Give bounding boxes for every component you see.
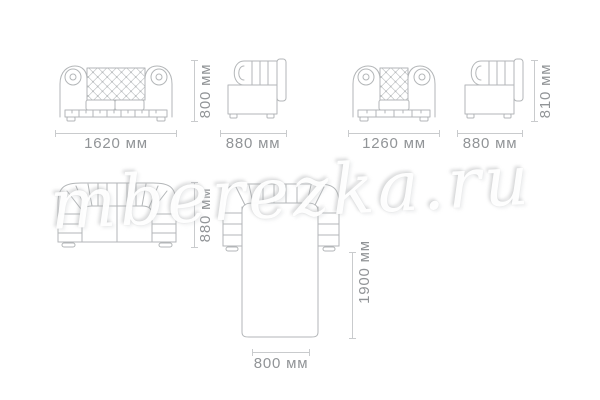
dimension-line-bed-length — [352, 252, 353, 339]
dimension-line-chair-height — [534, 60, 535, 122]
dimension-line-top-view-depth — [194, 182, 195, 248]
dimension-label-sofa-depth: 880 мм — [226, 136, 281, 152]
armchair-front-view-drawing — [348, 58, 440, 122]
dimension-label-sofa-height: 800 мм — [198, 64, 214, 119]
dimension-line-sofa-height — [194, 60, 195, 122]
sofa-front-view-drawing — [55, 58, 177, 122]
dimension-label-bed-width: 800 мм — [254, 356, 309, 372]
sofa-unfolded-top-view-drawing — [222, 182, 340, 340]
dimension-line-chair-width — [348, 133, 440, 134]
armchair-side-view-drawing — [457, 58, 525, 122]
dimension-line-bed-width — [252, 352, 310, 353]
sofa-side-view-drawing — [220, 58, 288, 122]
dimension-label-bed-length: 1900 мм — [357, 240, 373, 304]
dimension-line-sofa-depth — [220, 133, 287, 134]
dimension-label-chair-height: 810 мм — [538, 64, 554, 119]
dimension-label-chair-depth: 880 мм — [463, 136, 518, 152]
furniture-dimensions-diagram: 1620 мм 880 мм 1260 мм 880 мм 800 мм 800… — [0, 0, 600, 400]
dimension-label-top-view-depth: 880 мм — [198, 188, 214, 243]
dimension-label-sofa-width: 1620 мм — [84, 136, 148, 152]
dimension-line-sofa-width — [55, 133, 177, 134]
dimension-line-chair-depth — [457, 133, 523, 134]
sofa-top-view-drawing — [57, 181, 177, 249]
dimension-label-chair-width: 1260 мм — [362, 136, 426, 152]
